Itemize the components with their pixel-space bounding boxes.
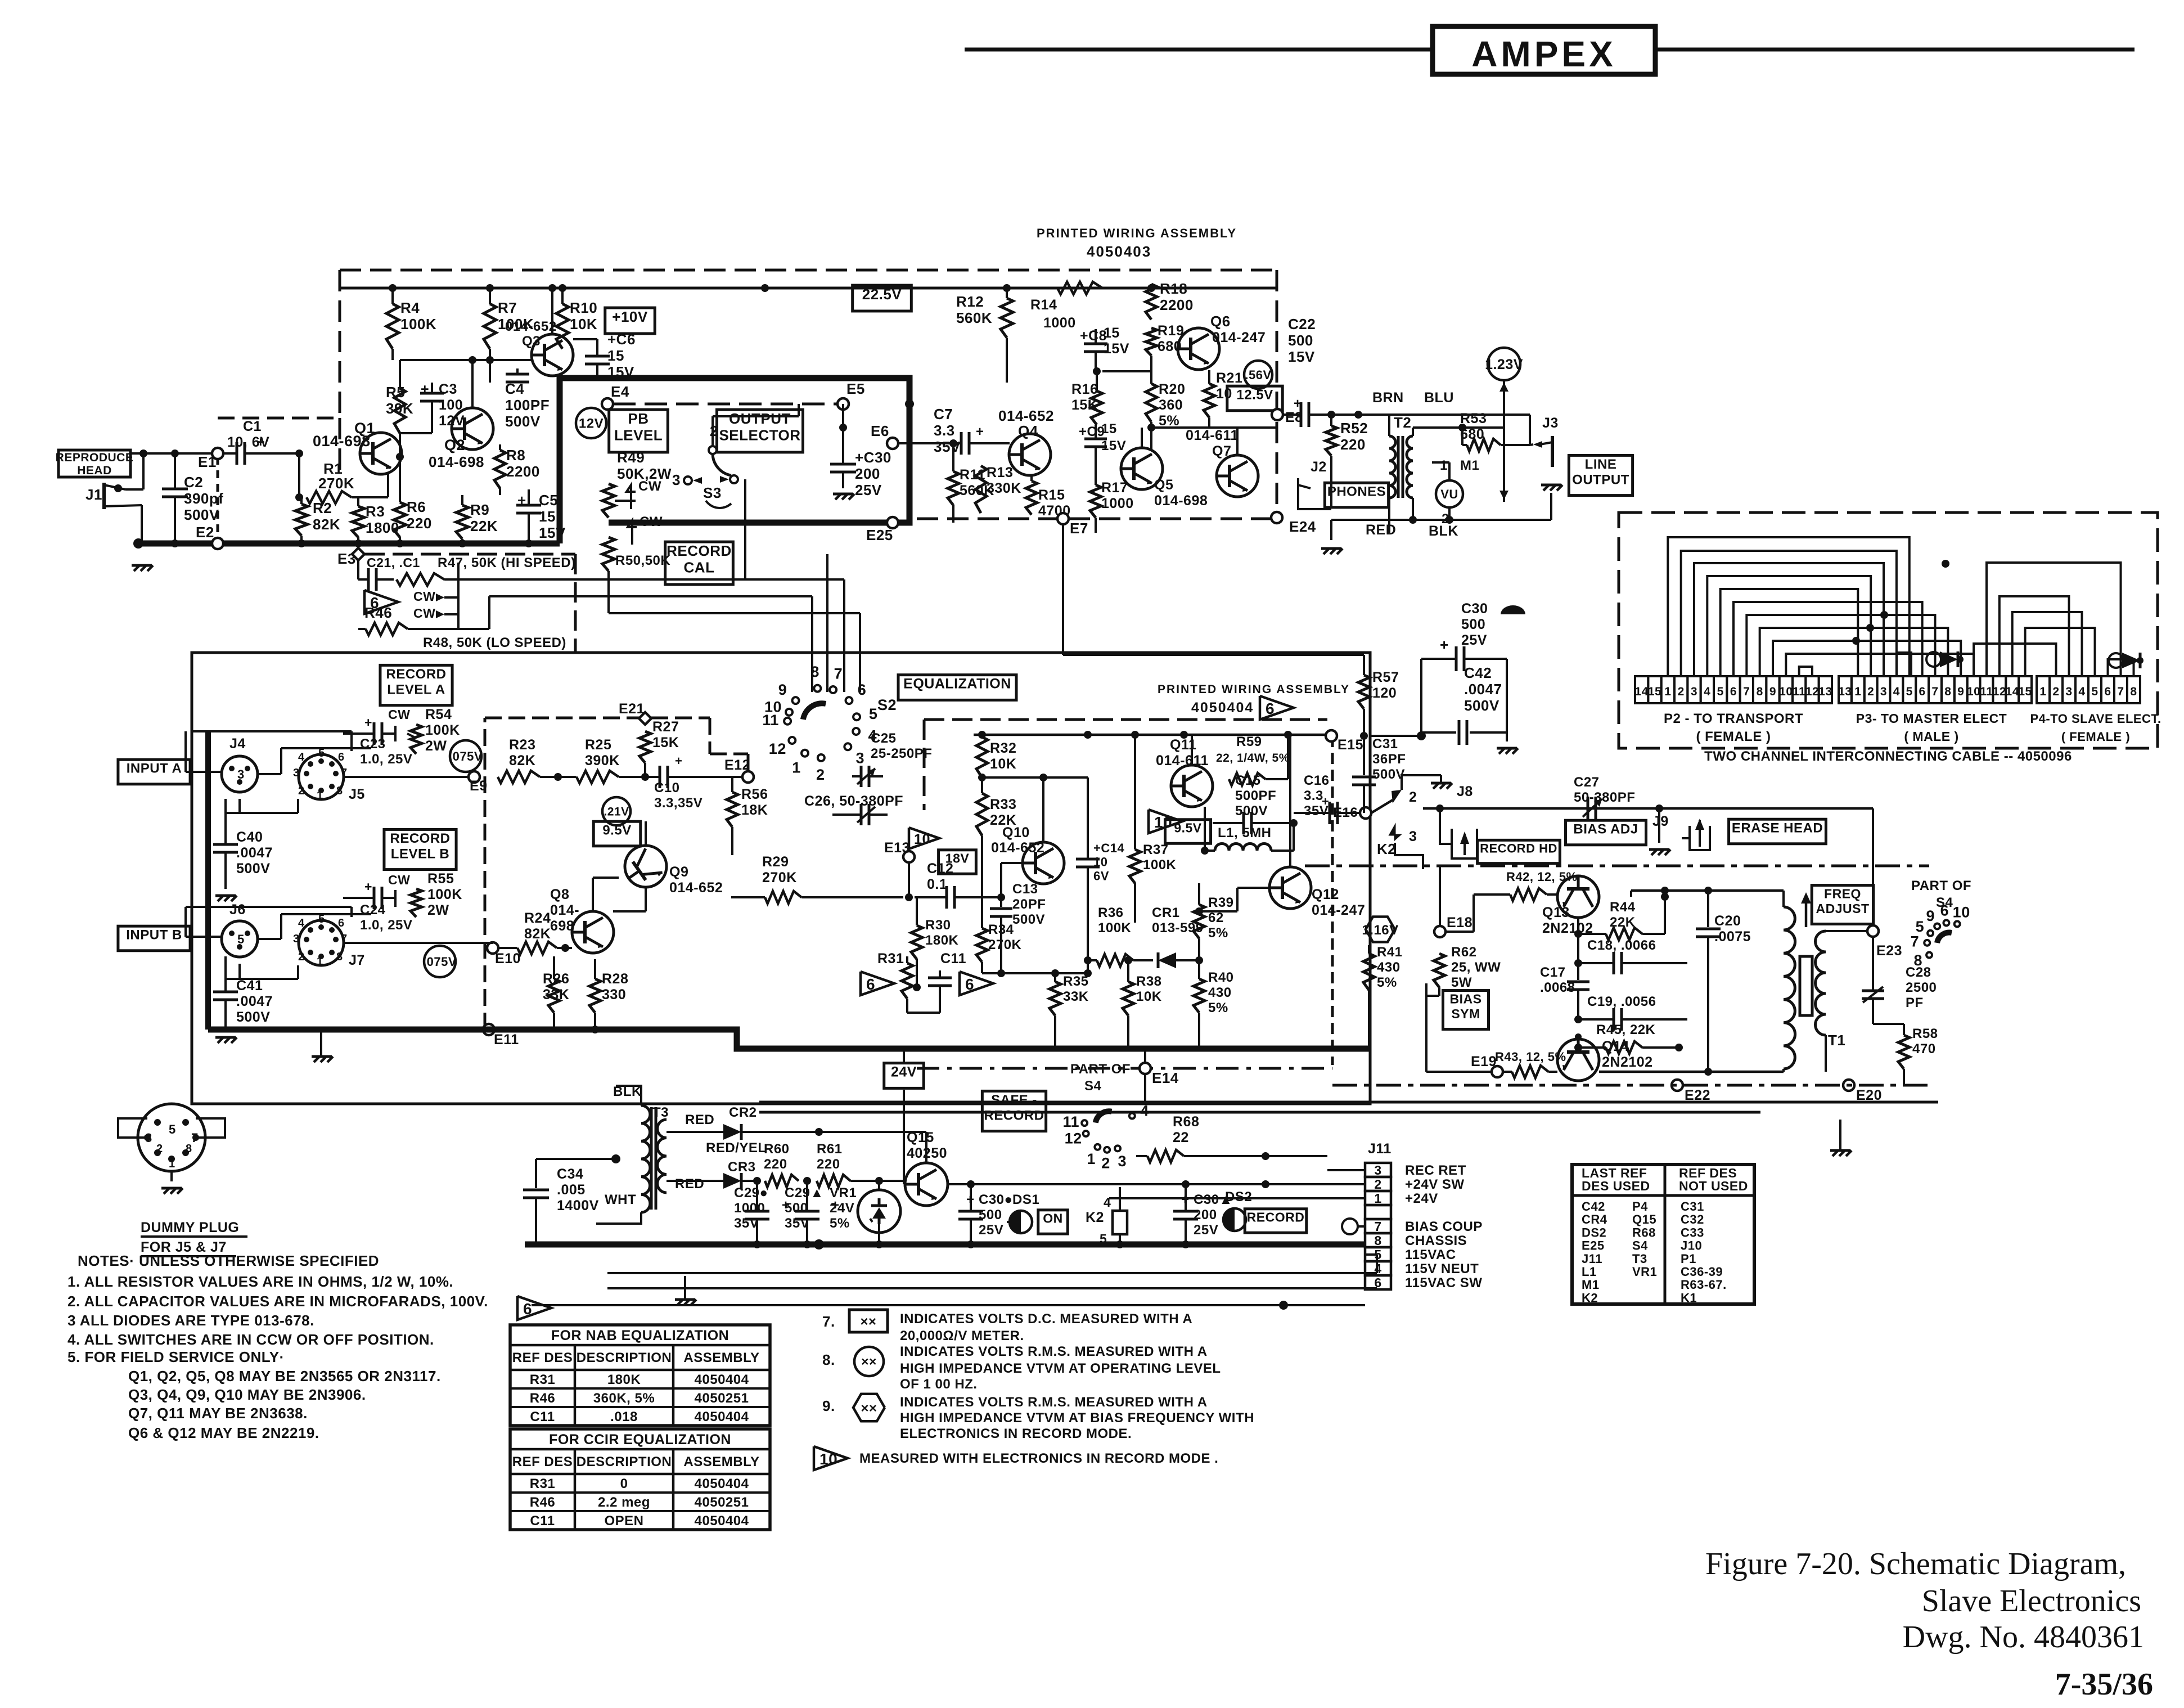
svg-text:J2: J2 xyxy=(1311,459,1327,475)
svg-text:C4: C4 xyxy=(505,380,524,397)
svg-text:LINE: LINE xyxy=(1585,457,1617,472)
svg-text:+C30: +C30 xyxy=(855,449,891,466)
svg-text:R17: R17 xyxy=(1101,480,1128,496)
svg-text:R6: R6 xyxy=(407,498,426,515)
svg-text:C31: C31 xyxy=(1372,736,1398,752)
svg-text:3: 3 xyxy=(1691,685,1697,698)
svg-text:6: 6 xyxy=(338,917,345,929)
svg-text:6: 6 xyxy=(2104,685,2111,698)
svg-text:CR1: CR1 xyxy=(1152,905,1180,920)
svg-text:J9: J9 xyxy=(1652,813,1669,829)
svg-text:+: + xyxy=(1440,636,1449,653)
svg-text:OPEN: OPEN xyxy=(604,1513,643,1529)
svg-text:R2: R2 xyxy=(313,500,332,516)
svg-text:20PF: 20PF xyxy=(1012,897,1046,912)
svg-text:8: 8 xyxy=(1374,1233,1381,1248)
svg-text:014-611: 014-611 xyxy=(1186,428,1239,443)
svg-text:C31: C31 xyxy=(1681,1199,1704,1213)
svg-text:REPRODUCE: REPRODUCE xyxy=(56,451,134,464)
svg-text:K2: K2 xyxy=(1377,840,1396,857)
svg-text:7: 7 xyxy=(2117,685,2124,698)
svg-text:Q6: Q6 xyxy=(1210,313,1231,330)
svg-text:Q5: Q5 xyxy=(1154,477,1173,493)
svg-text:R7: R7 xyxy=(498,299,517,316)
svg-text:R57: R57 xyxy=(1372,669,1399,685)
svg-text:100K: 100K xyxy=(1143,857,1177,873)
svg-text:9.: 9. xyxy=(822,1397,835,1414)
svg-text:6: 6 xyxy=(1266,700,1275,717)
svg-text:390pf: 390pf xyxy=(184,490,223,507)
svg-text:3: 3 xyxy=(237,767,245,781)
svg-text:5. FOR FIELD SERVICE: 5. FOR FIELD SERVICE ONLY· xyxy=(67,1349,285,1365)
svg-text:C11: C11 xyxy=(530,1409,555,1424)
svg-text:Q1, Q2, Q5, Q8 MAY BE 2N3: Q1, Q2, Q5, Q8 MAY BE 2N3565 OR 2N3117. xyxy=(128,1368,441,1385)
svg-text:12: 12 xyxy=(769,740,786,757)
svg-text:5: 5 xyxy=(169,1122,176,1136)
svg-text:82K: 82K xyxy=(509,753,535,768)
svg-text:RECORD: RECORD xyxy=(1247,1210,1305,1225)
svg-text:R32: R32 xyxy=(990,740,1016,756)
svg-text:+C8: +C8 xyxy=(1080,328,1107,344)
svg-text:+: + xyxy=(364,715,372,730)
svg-text:8: 8 xyxy=(2130,685,2137,698)
svg-text:PHONES: PHONES xyxy=(1327,484,1386,500)
svg-text:014-652: 014-652 xyxy=(505,319,557,334)
svg-text:22.5V: 22.5V xyxy=(862,286,902,303)
svg-text:R8: R8 xyxy=(506,447,525,464)
svg-text:C29▲: C29▲ xyxy=(785,1185,824,1201)
svg-text:××: ×× xyxy=(861,1354,877,1369)
svg-text:PRINTED WIRING ASSEMBLY: PRINTED WIRING ASSEMBLY xyxy=(1158,683,1350,696)
svg-text:5: 5 xyxy=(237,932,245,946)
svg-text:270K: 270K xyxy=(988,937,1022,952)
svg-text:6: 6 xyxy=(965,976,974,993)
svg-text:7.: 7. xyxy=(822,1313,835,1330)
svg-text:LEVEL: LEVEL xyxy=(614,427,663,444)
svg-text:10: 10 xyxy=(1953,904,1970,921)
svg-text:1: 1 xyxy=(2039,685,2046,698)
svg-text:014-247: 014-247 xyxy=(1312,902,1365,918)
svg-text:014-652: 014-652 xyxy=(669,880,723,896)
svg-text:Q12: Q12 xyxy=(1312,887,1339,902)
svg-text:1: 1 xyxy=(1374,1191,1381,1206)
svg-text:120: 120 xyxy=(1372,685,1397,701)
svg-text:2200: 2200 xyxy=(1160,296,1194,313)
svg-text:R20: R20 xyxy=(1159,381,1185,397)
svg-text:6: 6 xyxy=(338,751,345,763)
svg-text:10: 10 xyxy=(819,1450,837,1468)
svg-text:E11: E11 xyxy=(494,1032,519,1048)
svg-text:10K: 10K xyxy=(570,316,597,332)
svg-text:5%: 5% xyxy=(830,1216,850,1231)
svg-text:PRINTED WIRING ASSEMBLY: PRINTED WIRING ASSEMBLY xyxy=(1037,226,1237,240)
svg-text:REF DES: REF DES xyxy=(512,1350,573,1365)
svg-text:Q9: Q9 xyxy=(669,864,688,880)
svg-text:R3: R3 xyxy=(366,503,385,520)
svg-text:R31: R31 xyxy=(530,1476,556,1491)
svg-text:2N2102: 2N2102 xyxy=(1602,1054,1653,1070)
svg-text:5: 5 xyxy=(1717,685,1724,698)
svg-text:K2: K2 xyxy=(1086,1210,1104,1225)
svg-text:15: 15 xyxy=(1648,685,1661,698)
svg-text:+: + xyxy=(517,492,526,509)
svg-text:100K: 100K xyxy=(425,722,460,738)
svg-text:+C9: +C9 xyxy=(1079,424,1105,439)
svg-text:R56: R56 xyxy=(741,786,768,802)
svg-text:1: 1 xyxy=(317,955,323,968)
svg-text:C27: C27 xyxy=(1574,775,1600,790)
svg-text:470: 470 xyxy=(1912,1041,1936,1057)
svg-text:CAL: CAL xyxy=(684,559,715,576)
svg-text:R58: R58 xyxy=(1912,1026,1938,1041)
svg-text:1: 1 xyxy=(1087,1150,1096,1167)
svg-text:PART OF: PART OF xyxy=(1911,878,1971,893)
svg-text:10: 10 xyxy=(1216,386,1232,402)
svg-text:Q2: Q2 xyxy=(444,437,465,453)
svg-text:C30●: C30● xyxy=(979,1192,1013,1207)
svg-text:330K: 330K xyxy=(987,480,1021,496)
svg-text:R49: R49 xyxy=(617,449,645,466)
svg-text:E23: E23 xyxy=(1876,943,1902,959)
svg-text:3: 3 xyxy=(1409,829,1417,844)
svg-text:220: 220 xyxy=(407,515,432,532)
svg-text:14: 14 xyxy=(1634,685,1648,698)
svg-text:5%: 5% xyxy=(1208,1000,1228,1015)
svg-text:R35: R35 xyxy=(1063,974,1089,989)
svg-text:4050403: 4050403 xyxy=(1087,243,1151,260)
svg-text:J11: J11 xyxy=(1582,1252,1602,1266)
svg-text:R55: R55 xyxy=(427,871,454,887)
svg-text:J5: J5 xyxy=(349,786,365,802)
svg-text:.018: .018 xyxy=(610,1409,638,1424)
svg-text:PB: PB xyxy=(628,410,649,427)
svg-text:8: 8 xyxy=(1757,685,1763,698)
svg-text:3: 3 xyxy=(1374,1163,1381,1177)
svg-text:R68: R68 xyxy=(1173,1114,1199,1130)
svg-text:C17: C17 xyxy=(1540,965,1566,980)
svg-text:CW: CW xyxy=(638,479,661,494)
svg-text:( FEMALE ): ( FEMALE ) xyxy=(1696,729,1771,744)
svg-text:E14: E14 xyxy=(1152,1069,1179,1086)
svg-text:Q7: Q7 xyxy=(1212,443,1231,459)
svg-text:100PF: 100PF xyxy=(505,397,550,413)
svg-text:2: 2 xyxy=(298,785,305,797)
svg-text:6: 6 xyxy=(1940,902,1949,919)
svg-text:C42: C42 xyxy=(1582,1199,1605,1213)
svg-text:2: 2 xyxy=(156,1143,163,1155)
svg-text:C20: C20 xyxy=(1714,913,1741,929)
svg-text:1: 1 xyxy=(317,789,323,802)
svg-text:J6: J6 xyxy=(229,902,246,918)
svg-text:1: 1 xyxy=(169,1158,175,1170)
svg-text:R30: R30 xyxy=(925,918,951,933)
svg-text:ELECTRONICS IN RECORD MODE.: ELECTRONICS IN RECORD MODE. xyxy=(900,1426,1132,1441)
svg-text:ERASE HEAD: ERASE HEAD xyxy=(1732,821,1823,836)
svg-text:0: 0 xyxy=(620,1476,628,1491)
svg-text:430: 430 xyxy=(1208,985,1232,1000)
svg-text:4: 4 xyxy=(298,917,305,929)
svg-text:4: 4 xyxy=(298,751,305,763)
svg-text:25V: 25V xyxy=(979,1222,1003,1238)
svg-text:J10: J10 xyxy=(1681,1239,1702,1253)
svg-text:+: + xyxy=(831,1198,840,1213)
svg-text:R10: R10 xyxy=(570,299,597,316)
svg-text:R42, 12, 5%: R42, 12, 5% xyxy=(1506,870,1578,884)
svg-text:9.5V: 9.5V xyxy=(602,823,631,838)
svg-text:Slave Electronics: Slave Electronics xyxy=(1922,1584,2141,1619)
svg-text:11: 11 xyxy=(1062,1113,1079,1130)
svg-text:E6: E6 xyxy=(871,422,889,439)
svg-text:R12: R12 xyxy=(956,293,984,310)
svg-text:L1, 5MH: L1, 5MH xyxy=(1218,825,1272,840)
svg-text:E15: E15 xyxy=(1338,737,1363,753)
svg-text:180K: 180K xyxy=(607,1372,641,1387)
svg-text:CHASSIS: CHASSIS xyxy=(1405,1233,1467,1248)
svg-text:INDICATES VOLTS R.M.S. MEA: INDICATES VOLTS R.M.S. MEASURED WITH A xyxy=(900,1395,1208,1410)
svg-text:.075V: .075V xyxy=(449,749,483,763)
svg-text:8.: 8. xyxy=(822,1351,835,1368)
svg-text:Figure 7-20. Schematic Diagra: Figure 7-20. Schematic Diagram, xyxy=(1705,1547,2126,1581)
svg-text:Q13: Q13 xyxy=(1542,905,1570,920)
svg-text:CW: CW xyxy=(388,707,410,722)
svg-text:2: 2 xyxy=(1101,1155,1110,1172)
svg-text:11: 11 xyxy=(762,712,779,729)
svg-text:5%: 5% xyxy=(1208,925,1228,941)
svg-text:REF DES: REF DES xyxy=(512,1454,573,1469)
svg-text:R44: R44 xyxy=(1610,900,1636,915)
svg-text:500: 500 xyxy=(785,1201,808,1216)
svg-text:CR4: CR4 xyxy=(1582,1212,1607,1226)
svg-text:4050404: 4050404 xyxy=(695,1372,749,1387)
svg-text:E4: E4 xyxy=(611,383,629,400)
svg-text:.0047: .0047 xyxy=(1464,681,1502,698)
svg-text:24V: 24V xyxy=(891,1064,917,1080)
svg-text:( FEMALE ): ( FEMALE ) xyxy=(2061,730,2130,744)
svg-text:NOTES· UNLESS OTHERWISE SPEC: NOTES· UNLESS OTHERWISE SPECIFIED xyxy=(78,1252,379,1269)
svg-text:E12: E12 xyxy=(724,757,750,773)
svg-text:CR2: CR2 xyxy=(729,1105,757,1120)
svg-text:C10: C10 xyxy=(654,780,680,795)
svg-text:2: 2 xyxy=(298,951,305,963)
svg-text:3: 3 xyxy=(293,933,300,945)
svg-text:014-611: 014-611 xyxy=(1156,753,1209,768)
svg-text:12: 12 xyxy=(1993,685,2006,698)
svg-text:25V: 25V xyxy=(1461,632,1487,648)
svg-text:S2: S2 xyxy=(877,696,897,713)
svg-text:SYM: SYM xyxy=(1451,1006,1480,1021)
svg-text:15V: 15V xyxy=(1288,348,1315,365)
svg-text:7: 7 xyxy=(1743,685,1750,698)
svg-text:100K: 100K xyxy=(427,887,462,902)
svg-text:NOT USED: NOT USED xyxy=(1679,1179,1748,1193)
svg-text:8: 8 xyxy=(336,951,343,963)
svg-text:698: 698 xyxy=(550,918,574,934)
svg-text:LEVEL A: LEVEL A xyxy=(387,682,445,697)
svg-text:8: 8 xyxy=(1944,685,1951,698)
svg-text:DUMMY PLUG: DUMMY PLUG xyxy=(141,1220,239,1235)
svg-text:M1: M1 xyxy=(1582,1278,1600,1292)
svg-text:RECORD: RECORD xyxy=(667,542,732,559)
svg-text:10: 10 xyxy=(1967,685,1980,698)
svg-text:T2: T2 xyxy=(1394,414,1411,431)
svg-text:HIGH IMPEDANCE VTVM AT BIA: HIGH IMPEDANCE VTVM AT BIAS FREQUENCY WI… xyxy=(900,1410,1254,1426)
svg-text:DS2: DS2 xyxy=(1225,1189,1252,1204)
svg-text:Q10: Q10 xyxy=(1002,825,1030,840)
svg-text:15K: 15K xyxy=(652,735,679,750)
svg-text:1.0, 25V: 1.0, 25V xyxy=(360,752,412,767)
svg-text:+: + xyxy=(421,381,429,397)
svg-text:25, WW: 25, WW xyxy=(1451,960,1501,975)
svg-text:R5: R5 xyxy=(386,384,405,401)
svg-text:1. ALL RESISTOR VALUES: 1. ALL RESISTOR VALUES ARE IN OHMS, 1/2 … xyxy=(67,1273,453,1290)
svg-text:INPUT A: INPUT A xyxy=(127,761,182,776)
svg-text:36PF: 36PF xyxy=(1372,752,1406,767)
svg-text:+24V: +24V xyxy=(1405,1191,1438,1206)
svg-text:E13: E13 xyxy=(884,840,910,856)
svg-text:R4: R4 xyxy=(400,299,420,316)
svg-text:J11: J11 xyxy=(1368,1141,1392,1157)
svg-text:115V NEUT: 115V NEUT xyxy=(1405,1261,1479,1276)
svg-text:P4: P4 xyxy=(1632,1199,1648,1213)
svg-text:6: 6 xyxy=(858,681,867,698)
svg-text:3: 3 xyxy=(1880,685,1887,698)
svg-text:BIAS: BIAS xyxy=(1450,991,1482,1006)
svg-text:HIGH IMPEDANCE VTVM AT OPE: HIGH IMPEDANCE VTVM AT OPERATING LEVEL xyxy=(900,1361,1221,1376)
svg-text:3.3,35V: 3.3,35V xyxy=(654,795,703,811)
svg-text:C11: C11 xyxy=(940,951,966,967)
svg-text:T1: T1 xyxy=(1828,1032,1845,1049)
svg-text:4. ALL SWITCHES ARE IN: 4. ALL SWITCHES ARE IN CCW OR OFF POSITI… xyxy=(67,1331,434,1348)
svg-text:500V: 500V xyxy=(184,506,219,523)
svg-text:8: 8 xyxy=(186,1143,192,1155)
svg-text:C1: C1 xyxy=(243,419,262,434)
svg-text:××: ×× xyxy=(861,1401,877,1416)
svg-text:R14: R14 xyxy=(1030,297,1057,313)
svg-text:500PF: 500PF xyxy=(1235,788,1276,803)
svg-text:15: 15 xyxy=(539,508,556,525)
svg-text:R27: R27 xyxy=(652,719,679,735)
svg-text:1000: 1000 xyxy=(1043,315,1076,331)
svg-text:2: 2 xyxy=(710,422,718,439)
svg-text:R45, 22K: R45, 22K xyxy=(1596,1022,1656,1037)
svg-text:2: 2 xyxy=(1374,1177,1381,1192)
svg-text:4: 4 xyxy=(1140,1103,1149,1120)
svg-text:AMPEX: AMPEX xyxy=(1471,34,1616,74)
svg-text:4: 4 xyxy=(1893,685,1900,698)
svg-text:5%: 5% xyxy=(1377,975,1397,990)
svg-text:BIAS ADJ: BIAS ADJ xyxy=(1573,822,1638,837)
svg-text:+: + xyxy=(364,879,372,894)
svg-text:R60: R60 xyxy=(764,1141,790,1157)
svg-text:J7: J7 xyxy=(349,952,365,968)
svg-text:4050404: 4050404 xyxy=(695,1476,749,1491)
svg-text:R61: R61 xyxy=(817,1141,843,1157)
svg-text:115VAC SW: 115VAC SW xyxy=(1405,1275,1482,1291)
svg-text:3: 3 xyxy=(293,767,300,779)
svg-text:CW: CW xyxy=(413,606,435,621)
svg-text:014-698: 014-698 xyxy=(1154,493,1208,509)
svg-text:P4-TO SLAVE ELECT.: P4-TO SLAVE ELECT. xyxy=(2030,712,2161,726)
svg-text:R24: R24 xyxy=(524,910,551,926)
svg-text:C41: C41 xyxy=(236,978,263,994)
svg-text:CW: CW xyxy=(413,589,435,604)
svg-text:C42: C42 xyxy=(1464,664,1492,681)
svg-text:R46: R46 xyxy=(530,1391,556,1406)
svg-text:INDICATES VOLTS R.M.S. MEAS: INDICATES VOLTS R.M.S. MEASURED WITH A xyxy=(900,1344,1208,1359)
svg-text:C36-39: C36-39 xyxy=(1681,1265,1723,1279)
svg-text:E10: E10 xyxy=(495,951,521,967)
svg-text:R18: R18 xyxy=(1160,280,1187,297)
svg-text:7: 7 xyxy=(1931,685,1938,698)
svg-text:15K: 15K xyxy=(1071,397,1098,413)
svg-text:1.16V: 1.16V xyxy=(1362,923,1398,938)
svg-text:.0047: .0047 xyxy=(236,994,273,1009)
svg-text:SAFE -: SAFE - xyxy=(991,1093,1037,1108)
svg-text:PART OF: PART OF xyxy=(1070,1062,1131,1077)
svg-text:8: 8 xyxy=(810,663,819,680)
svg-text:4050404: 4050404 xyxy=(695,1513,749,1529)
svg-text:6: 6 xyxy=(1730,685,1737,698)
svg-text:R31: R31 xyxy=(877,951,904,967)
svg-text:RECORD: RECORD xyxy=(390,831,450,846)
svg-text:014-698: 014-698 xyxy=(429,453,484,470)
svg-text:560K: 560K xyxy=(956,309,992,326)
svg-text:R54: R54 xyxy=(425,707,452,722)
svg-text:270K: 270K xyxy=(762,870,797,886)
svg-text:360K, 5%: 360K, 5% xyxy=(593,1391,655,1406)
svg-text:3: 3 xyxy=(672,471,681,488)
svg-text:500V: 500V xyxy=(1372,767,1405,782)
svg-text:4050404: 4050404 xyxy=(695,1409,749,1424)
svg-text:RED: RED xyxy=(675,1176,704,1192)
svg-text:6: 6 xyxy=(1374,1275,1381,1290)
svg-text:FOR CCIR EQUALIZATION: FOR CCIR EQUALIZATION xyxy=(549,1432,731,1448)
svg-text:680: 680 xyxy=(1460,426,1484,442)
svg-text:4050251: 4050251 xyxy=(695,1495,749,1510)
svg-text:C12: C12 xyxy=(927,861,953,877)
svg-text:2: 2 xyxy=(816,766,825,783)
svg-text:E24: E24 xyxy=(1289,518,1316,535)
svg-text:DS1: DS1 xyxy=(1012,1192,1039,1207)
svg-text:R38: R38 xyxy=(1136,974,1162,989)
svg-text:E18: E18 xyxy=(1447,915,1472,931)
svg-text:C19, .0056: C19, .0056 xyxy=(1587,994,1656,1009)
svg-text:5W: 5W xyxy=(1451,975,1472,990)
svg-text:C22: C22 xyxy=(1288,316,1316,332)
svg-text:INDICATES VOLTS D.C. MEASUR: INDICATES VOLTS D.C. MEASURED WITH A xyxy=(900,1311,1192,1327)
svg-text:J4: J4 xyxy=(229,736,246,752)
svg-text:CR3: CR3 xyxy=(728,1159,756,1175)
svg-text:12V: 12V xyxy=(579,416,604,432)
svg-text:500V: 500V xyxy=(236,1009,270,1025)
svg-text:P1: P1 xyxy=(1681,1252,1696,1266)
svg-text:100K: 100K xyxy=(400,316,436,332)
svg-text:BLU: BLU xyxy=(1424,390,1454,406)
svg-text:C32: C32 xyxy=(1681,1212,1704,1226)
svg-text:13: 13 xyxy=(1818,685,1832,698)
svg-text:5: 5 xyxy=(869,705,878,722)
svg-text:E7: E7 xyxy=(1070,520,1088,537)
svg-text:C34: C34 xyxy=(557,1166,583,1182)
svg-text:J3: J3 xyxy=(1542,415,1559,431)
svg-text:Dwg. No. 4840361: Dwg. No. 4840361 xyxy=(1903,1620,2144,1655)
svg-text:K2: K2 xyxy=(1582,1291,1598,1305)
svg-text:FOR NAB EQUALIZATION: FOR NAB EQUALIZATION xyxy=(551,1328,729,1343)
svg-text:0.1: 0.1 xyxy=(927,877,947,892)
svg-text:S4: S4 xyxy=(1632,1239,1648,1253)
svg-text:100K: 100K xyxy=(1098,920,1132,936)
svg-text:2: 2 xyxy=(2052,685,2059,698)
